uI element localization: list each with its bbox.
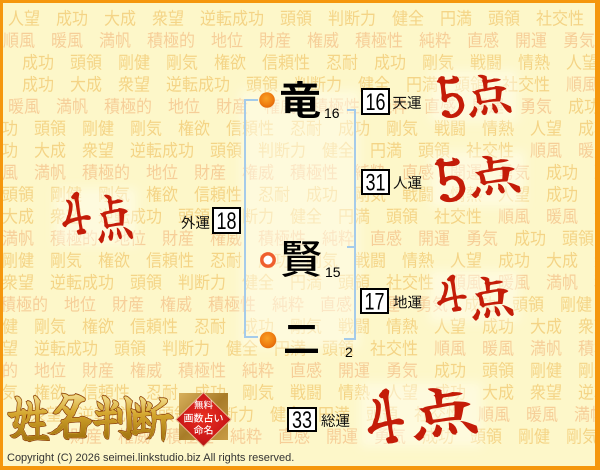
svg-text:18: 18: [217, 208, 237, 235]
svg-text:Copyright (C) 2026 seimei.link: Copyright (C) 2026 seimei.linkstudio.biz…: [7, 452, 294, 464]
svg-text:17: 17: [365, 289, 385, 316]
svg-text:31: 31: [366, 170, 386, 197]
svg-text:33: 33: [292, 407, 312, 434]
svg-text:16: 16: [366, 89, 386, 116]
